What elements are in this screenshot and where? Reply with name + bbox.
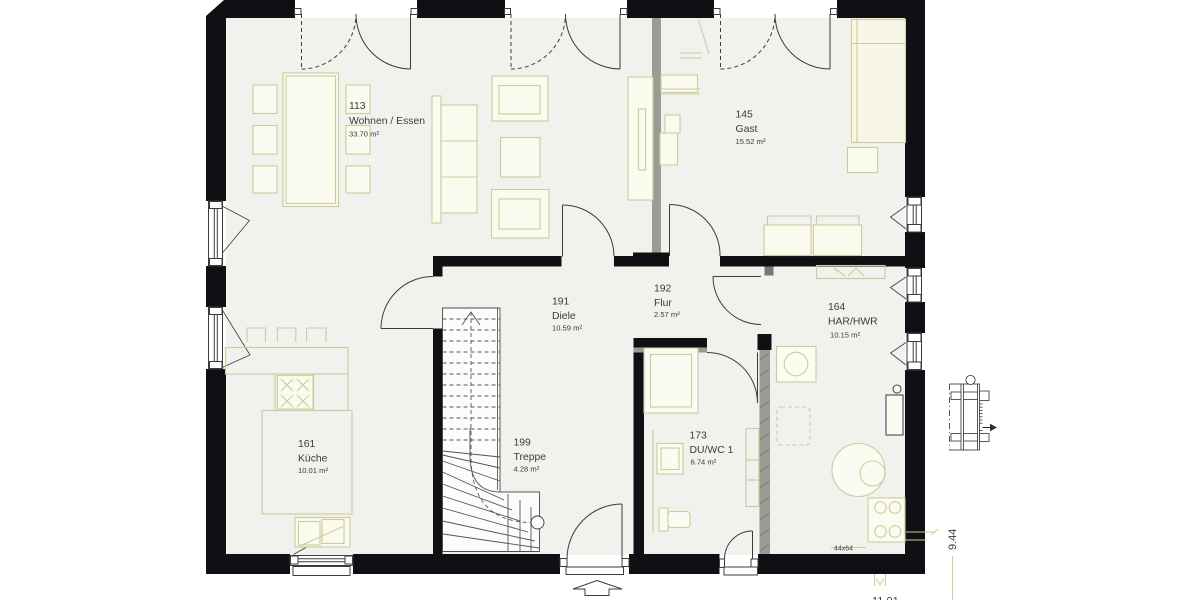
svg-text:Gast: Gast xyxy=(736,124,758,135)
svg-text:9.44: 9.44 xyxy=(947,529,959,550)
svg-text:44x64: 44x64 xyxy=(834,546,853,553)
svg-text:10.01 m²: 10.01 m² xyxy=(298,466,328,475)
svg-text:192: 192 xyxy=(654,284,672,295)
svg-text:Treppe: Treppe xyxy=(514,452,547,463)
svg-text:HAR/HWR: HAR/HWR xyxy=(828,317,878,328)
svg-text:191: 191 xyxy=(552,297,570,308)
svg-text:199: 199 xyxy=(514,438,532,449)
svg-text:145: 145 xyxy=(736,110,754,121)
svg-text:Diele: Diele xyxy=(552,311,576,322)
svg-text:6.74 m²: 6.74 m² xyxy=(691,458,717,467)
svg-text:164: 164 xyxy=(828,302,846,313)
svg-text:4.28 m²: 4.28 m² xyxy=(514,465,540,474)
svg-text:15.52 m²: 15.52 m² xyxy=(736,137,766,146)
svg-text:173: 173 xyxy=(690,431,708,442)
svg-text:2.57 m²: 2.57 m² xyxy=(654,310,680,319)
svg-text:113: 113 xyxy=(349,101,366,112)
svg-text:Flur: Flur xyxy=(654,298,672,309)
svg-text:161: 161 xyxy=(298,439,316,450)
svg-text:11.01: 11.01 xyxy=(872,596,899,600)
svg-text:Wohnen / Essen: Wohnen / Essen xyxy=(349,116,425,127)
svg-text:Küche: Küche xyxy=(298,454,328,465)
svg-text:10.15 m²: 10.15 m² xyxy=(830,331,860,340)
svg-text:DU/WC 1: DU/WC 1 xyxy=(690,445,734,456)
svg-text:33.70 m²: 33.70 m² xyxy=(349,130,379,139)
svg-text:10.59 m²: 10.59 m² xyxy=(552,324,582,333)
